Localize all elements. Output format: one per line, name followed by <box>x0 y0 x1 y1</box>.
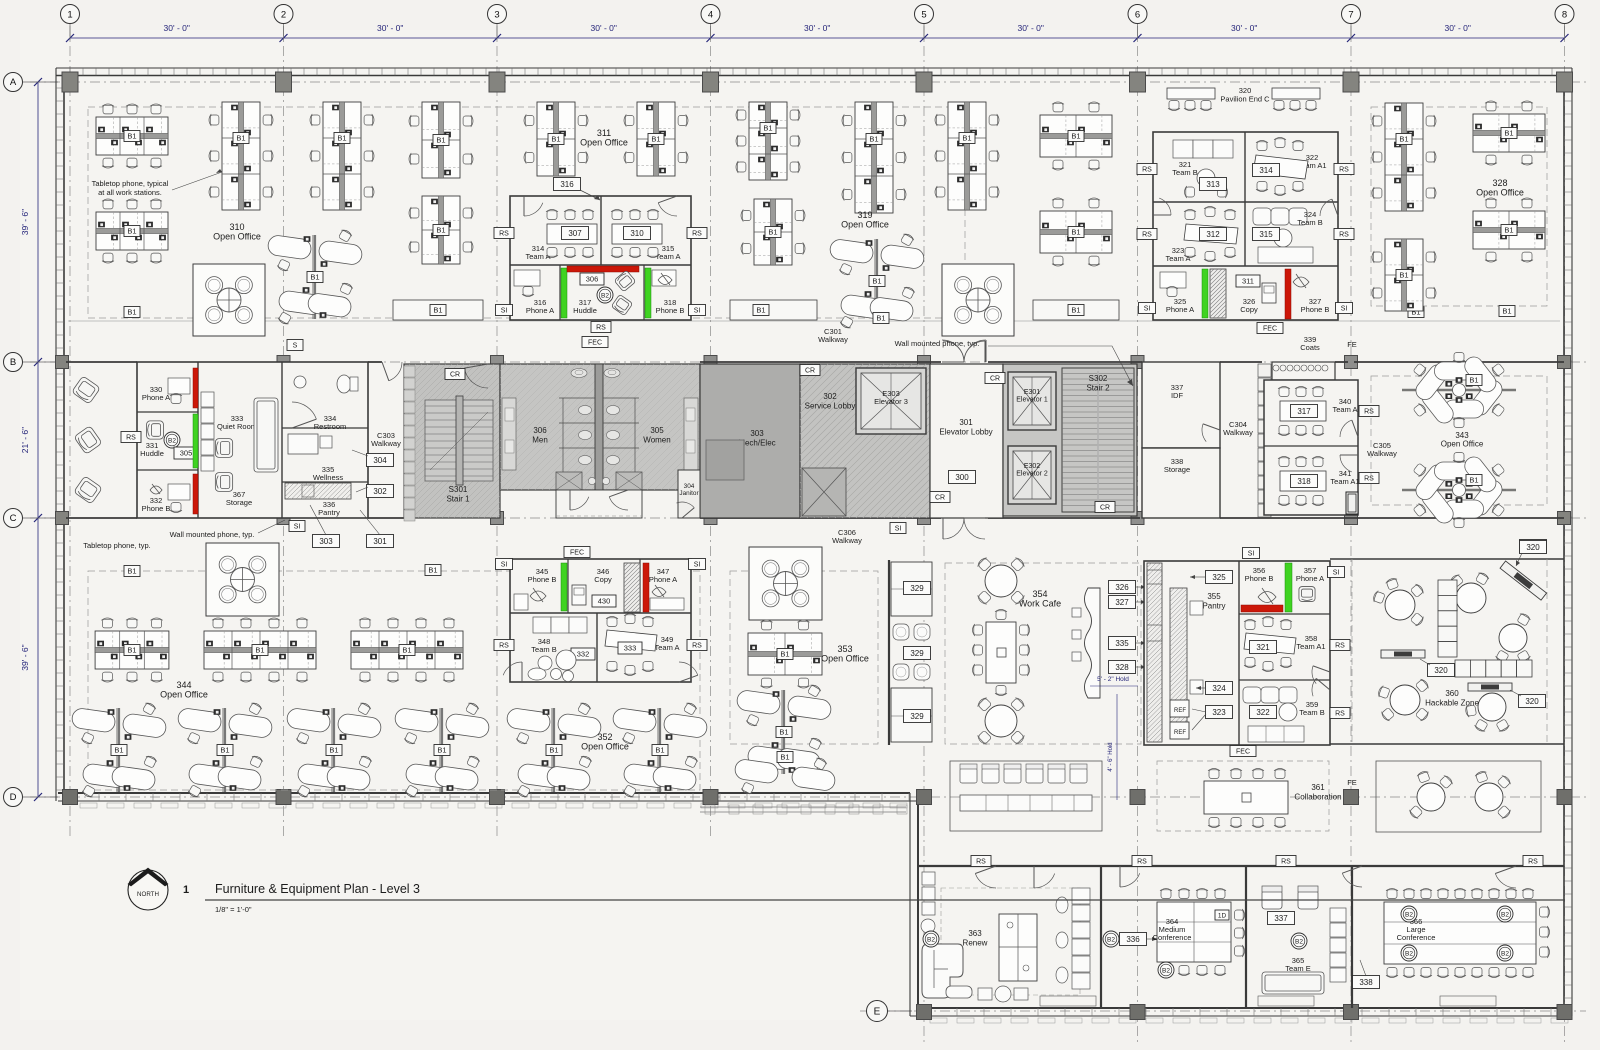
svg-text:B1: B1 <box>1071 132 1080 141</box>
svg-text:SI: SI <box>694 308 701 315</box>
svg-text:Women: Women <box>643 436 670 445</box>
svg-text:RS: RS <box>596 325 606 332</box>
svg-text:Walkway: Walkway <box>1367 449 1397 458</box>
svg-text:Team B: Team B <box>1299 708 1324 717</box>
svg-text:B1: B1 <box>1504 226 1513 235</box>
svg-text:333: 333 <box>624 644 637 653</box>
svg-text:430: 430 <box>598 597 611 606</box>
svg-text:B1: B1 <box>310 273 319 282</box>
svg-text:B1: B1 <box>763 124 772 133</box>
svg-text:Open Office: Open Office <box>1476 188 1524 198</box>
svg-text:Phone B: Phone B <box>1245 574 1274 583</box>
svg-text:B1: B1 <box>1071 228 1080 237</box>
svg-text:Stair 1: Stair 1 <box>446 495 470 504</box>
svg-text:316: 316 <box>560 180 574 189</box>
svg-text:Team B: Team B <box>1172 168 1197 177</box>
svg-text:301: 301 <box>959 418 973 427</box>
svg-text:315: 315 <box>1259 230 1273 239</box>
svg-text:SI: SI <box>1248 551 1255 558</box>
svg-text:B1: B1 <box>236 134 245 143</box>
svg-text:B2: B2 <box>1295 939 1303 946</box>
svg-text:RS: RS <box>1339 167 1349 174</box>
svg-text:FEC: FEC <box>588 340 602 347</box>
svg-text:5' - 2" Hold: 5' - 2" Hold <box>1097 676 1129 683</box>
svg-text:Stair 2: Stair 2 <box>1086 384 1110 393</box>
svg-text:30' - 0": 30' - 0" <box>804 23 830 33</box>
svg-text:D: D <box>10 792 17 803</box>
svg-text:B2: B2 <box>601 293 609 300</box>
svg-text:352: 352 <box>597 732 612 742</box>
svg-text:B1: B1 <box>127 646 136 655</box>
svg-text:337: 337 <box>1274 914 1288 923</box>
svg-text:B1: B1 <box>127 308 136 317</box>
svg-text:Open Office: Open Office <box>580 138 628 148</box>
svg-text:B2: B2 <box>1501 951 1509 958</box>
svg-text:Pantry: Pantry <box>318 508 340 517</box>
svg-text:B1: B1 <box>551 135 560 144</box>
svg-text:Phone A: Phone A <box>526 306 554 315</box>
svg-text:E301: E301 <box>1024 389 1040 396</box>
svg-text:Team A: Team A <box>654 643 679 652</box>
svg-text:B1: B1 <box>768 228 777 237</box>
svg-text:30' - 0": 30' - 0" <box>1445 23 1471 33</box>
svg-text:Phone A: Phone A <box>1166 305 1194 314</box>
svg-text:B1: B1 <box>337 134 346 143</box>
svg-text:30' - 0": 30' - 0" <box>377 23 403 33</box>
svg-text:B2: B2 <box>1107 937 1115 944</box>
svg-text:300: 300 <box>955 473 969 482</box>
svg-text:SI: SI <box>895 526 902 533</box>
svg-text:Huddle: Huddle <box>573 306 597 315</box>
svg-text:305: 305 <box>180 449 193 458</box>
svg-text:361: 361 <box>1311 783 1325 792</box>
svg-text:1: 1 <box>183 884 189 896</box>
svg-text:Men: Men <box>532 436 548 445</box>
svg-text:301: 301 <box>373 537 387 546</box>
svg-text:RS: RS <box>1281 859 1291 866</box>
svg-text:Wall mounted phone, typ.: Wall mounted phone, typ. <box>170 530 255 539</box>
svg-text:30' - 0": 30' - 0" <box>164 23 190 33</box>
svg-text:SI: SI <box>1341 306 1348 313</box>
svg-text:Elevator 2: Elevator 2 <box>1016 471 1048 478</box>
svg-text:at all work stations.: at all work stations. <box>98 188 162 197</box>
svg-text:8: 8 <box>1562 10 1567 21</box>
svg-text:314: 314 <box>1259 166 1273 175</box>
svg-text:B1: B1 <box>876 314 885 323</box>
svg-text:RS: RS <box>1364 476 1374 483</box>
svg-text:RS: RS <box>1137 859 1147 866</box>
svg-text:Walkway: Walkway <box>818 335 848 344</box>
svg-text:Conference: Conference <box>1153 933 1192 942</box>
svg-text:302: 302 <box>823 392 837 401</box>
svg-text:Wellness: Wellness <box>313 473 344 482</box>
svg-text:Open Office: Open Office <box>581 742 629 752</box>
svg-text:C: C <box>10 513 17 524</box>
svg-text:318: 318 <box>1297 477 1311 486</box>
svg-text:RS: RS <box>1528 859 1538 866</box>
svg-text:Wall mounted phone, typ.: Wall mounted phone, typ. <box>895 339 980 348</box>
svg-text:329: 329 <box>910 649 924 658</box>
svg-text:Team A1: Team A1 <box>1330 477 1359 486</box>
svg-text:B1: B1 <box>127 227 136 236</box>
svg-text:303: 303 <box>319 537 333 546</box>
svg-text:Storage: Storage <box>226 498 252 507</box>
svg-text:FEC: FEC <box>1263 326 1277 333</box>
svg-text:B: B <box>10 357 16 368</box>
svg-text:B1: B1 <box>779 728 788 737</box>
svg-text:320: 320 <box>1526 543 1540 552</box>
svg-text:B1: B1 <box>1504 129 1513 138</box>
svg-text:Open Office: Open Office <box>841 220 889 230</box>
svg-text:312: 312 <box>1206 230 1220 239</box>
svg-text:Team A: Team A <box>655 252 680 261</box>
svg-text:Hackable Zone: Hackable Zone <box>1425 699 1479 708</box>
svg-text:B1: B1 <box>220 746 229 755</box>
svg-text:Tabletop phone, typical: Tabletop phone, typical <box>92 179 169 188</box>
svg-text:Collaboration: Collaboration <box>1294 793 1341 802</box>
svg-text:B2: B2 <box>1501 912 1509 919</box>
svg-text:1D: 1D <box>1218 912 1227 919</box>
svg-text:Team A: Team A <box>1332 405 1357 414</box>
svg-text:6: 6 <box>1135 10 1140 21</box>
svg-text:4: 4 <box>708 10 713 21</box>
svg-text:338: 338 <box>1359 978 1373 987</box>
svg-text:E: E <box>874 1007 881 1018</box>
svg-text:Service Lobby: Service Lobby <box>805 402 856 411</box>
svg-text:S301: S301 <box>449 485 468 494</box>
svg-text:311: 311 <box>1242 277 1254 286</box>
svg-text:Coats: Coats <box>1300 343 1320 352</box>
svg-text:Huddle: Huddle <box>140 449 164 458</box>
svg-text:B1: B1 <box>962 134 971 143</box>
svg-text:B1: B1 <box>1399 135 1408 144</box>
svg-text:B2: B2 <box>168 438 176 445</box>
svg-text:328: 328 <box>1115 663 1129 672</box>
svg-text:Furniture & Equipment Plan - L: Furniture & Equipment Plan - Level 3 <box>215 882 420 896</box>
svg-text:3: 3 <box>494 10 499 21</box>
svg-text:SI: SI <box>694 562 701 569</box>
svg-text:Open Office: Open Office <box>1441 440 1484 449</box>
svg-text:B1: B1 <box>437 746 446 755</box>
svg-text:B1: B1 <box>127 132 136 141</box>
svg-text:21' - 6": 21' - 6" <box>20 427 30 453</box>
svg-text:IDF: IDF <box>1171 391 1184 400</box>
svg-text:B1: B1 <box>1469 476 1478 485</box>
svg-text:SI: SI <box>1333 570 1340 577</box>
svg-text:Elevator Lobby: Elevator Lobby <box>939 428 992 437</box>
svg-text:39' - 6": 39' - 6" <box>20 644 30 670</box>
svg-text:Pantry: Pantry <box>1202 602 1225 611</box>
svg-text:30' - 0": 30' - 0" <box>591 23 617 33</box>
svg-text:329: 329 <box>910 712 924 721</box>
svg-text:Janitor: Janitor <box>679 490 699 497</box>
svg-text:335: 335 <box>1115 639 1129 648</box>
svg-text:319: 319 <box>857 210 872 220</box>
svg-text:320: 320 <box>1434 666 1448 675</box>
svg-text:303: 303 <box>750 429 764 438</box>
svg-text:324: 324 <box>1212 684 1226 693</box>
svg-text:B1: B1 <box>655 746 664 755</box>
svg-text:B2: B2 <box>1405 951 1413 958</box>
svg-text:RS: RS <box>126 435 136 442</box>
svg-text:RS: RS <box>1335 643 1345 650</box>
svg-text:325: 325 <box>1212 573 1226 582</box>
svg-text:Team A1: Team A1 <box>1296 642 1325 651</box>
svg-text:B1: B1 <box>428 566 437 575</box>
svg-text:RS: RS <box>1339 232 1349 239</box>
svg-text:B1: B1 <box>329 746 338 755</box>
svg-text:Phone A: Phone A <box>1296 574 1324 583</box>
svg-text:Storage: Storage <box>1164 465 1190 474</box>
svg-text:B1: B1 <box>549 746 558 755</box>
svg-text:Work Cafe: Work Cafe <box>1019 599 1061 609</box>
svg-text:Walkway: Walkway <box>832 536 862 545</box>
svg-text:RS: RS <box>499 643 509 650</box>
svg-text:Phone B: Phone B <box>142 504 171 513</box>
svg-text:Phone A: Phone A <box>649 575 677 584</box>
svg-text:B1: B1 <box>255 646 264 655</box>
svg-text:B1: B1 <box>651 135 660 144</box>
svg-text:SI: SI <box>294 524 301 531</box>
svg-text:Open Office: Open Office <box>160 690 208 700</box>
svg-text:B1: B1 <box>780 650 789 659</box>
svg-text:FE: FE <box>1347 778 1357 787</box>
svg-text:B1: B1 <box>1502 307 1511 316</box>
svg-text:B2: B2 <box>1405 912 1413 919</box>
svg-text:A: A <box>10 77 17 88</box>
svg-text:Elevator 1: Elevator 1 <box>1016 397 1048 404</box>
svg-text:NORTH: NORTH <box>137 891 159 898</box>
svg-text:CR: CR <box>990 376 1000 383</box>
svg-text:Copy: Copy <box>594 575 612 584</box>
svg-text:CR: CR <box>935 495 945 502</box>
svg-text:REF: REF <box>1174 730 1186 736</box>
svg-text:B1: B1 <box>127 567 136 576</box>
svg-text:1/8" = 1'-0": 1/8" = 1'-0" <box>215 905 252 914</box>
svg-text:Phone A: Phone A <box>142 393 170 402</box>
svg-text:5: 5 <box>921 10 926 21</box>
svg-text:Tabletop phone, typ.: Tabletop phone, typ. <box>83 541 151 550</box>
svg-text:B1: B1 <box>114 746 123 755</box>
svg-text:S: S <box>293 343 298 350</box>
svg-text:336: 336 <box>1126 935 1140 944</box>
svg-text:B1: B1 <box>780 753 789 762</box>
svg-text:RS: RS <box>1142 167 1152 174</box>
svg-text:304: 304 <box>373 456 387 465</box>
svg-text:Copy: Copy <box>1240 305 1258 314</box>
svg-text:Team B: Team B <box>1297 218 1322 227</box>
svg-text:326: 326 <box>1115 583 1129 592</box>
svg-text:355: 355 <box>1207 592 1221 601</box>
svg-text:317: 317 <box>1297 407 1311 416</box>
svg-text:SI: SI <box>501 562 508 569</box>
svg-text:RS: RS <box>499 231 509 238</box>
svg-text:332: 332 <box>577 650 590 659</box>
svg-text:SI: SI <box>501 308 508 315</box>
svg-text:SI: SI <box>1144 306 1151 313</box>
svg-text:323: 323 <box>1212 708 1226 717</box>
svg-text:4' - 6" Hold: 4' - 6" Hold <box>1108 742 1114 771</box>
svg-text:Pavilion End C: Pavilion End C <box>1220 95 1270 104</box>
svg-text:354: 354 <box>1032 589 1047 599</box>
svg-text:FE: FE <box>1347 340 1357 349</box>
svg-text:305: 305 <box>650 426 664 435</box>
svg-text:313: 313 <box>1206 180 1220 189</box>
svg-text:2: 2 <box>281 10 286 21</box>
svg-text:1: 1 <box>67 10 72 21</box>
svg-text:39' - 6": 39' - 6" <box>20 209 30 235</box>
svg-text:302: 302 <box>373 487 387 496</box>
svg-text:RS: RS <box>976 859 986 866</box>
svg-text:320: 320 <box>1525 697 1539 706</box>
svg-text:304: 304 <box>684 483 695 490</box>
svg-text:B1: B1 <box>869 135 878 144</box>
svg-text:30' - 0": 30' - 0" <box>1018 23 1044 33</box>
svg-text:B1: B1 <box>1071 306 1080 315</box>
svg-text:B1: B1 <box>1399 271 1408 280</box>
svg-text:306: 306 <box>533 426 547 435</box>
svg-text:B1: B1 <box>402 646 411 655</box>
svg-text:B1: B1 <box>433 306 442 315</box>
svg-text:363: 363 <box>968 929 982 938</box>
svg-text:B1: B1 <box>872 277 881 286</box>
svg-text:RS: RS <box>1364 409 1374 416</box>
svg-text:CR: CR <box>805 368 815 375</box>
svg-text:FEC: FEC <box>570 550 584 557</box>
svg-text:B1: B1 <box>756 306 765 315</box>
svg-text:Elevator 3: Elevator 3 <box>874 397 908 406</box>
svg-text:Walkway: Walkway <box>1223 428 1253 437</box>
svg-text:344: 344 <box>176 680 191 690</box>
svg-text:353: 353 <box>837 644 852 654</box>
svg-text:307: 307 <box>568 229 582 238</box>
svg-text:Phone B: Phone B <box>528 575 557 584</box>
svg-text:REF: REF <box>1174 708 1186 714</box>
svg-text:322: 322 <box>1256 708 1270 717</box>
svg-text:Conference: Conference <box>1397 933 1436 942</box>
svg-text:RS: RS <box>1142 232 1152 239</box>
svg-text:327: 327 <box>1115 598 1129 607</box>
svg-text:B1: B1 <box>436 226 445 235</box>
svg-text:329: 329 <box>910 584 924 593</box>
svg-text:310: 310 <box>229 222 244 232</box>
svg-text:Open Office: Open Office <box>821 654 869 664</box>
svg-text:B1: B1 <box>1469 376 1478 385</box>
svg-text:CR: CR <box>1100 505 1110 512</box>
svg-text:360: 360 <box>1445 689 1459 698</box>
svg-text:310: 310 <box>630 229 644 238</box>
svg-text:30' - 0": 30' - 0" <box>1231 23 1257 33</box>
svg-text:Open Office: Open Office <box>213 232 261 242</box>
svg-text:RS: RS <box>692 643 702 650</box>
svg-text:311: 311 <box>597 128 611 138</box>
svg-text:Walkway: Walkway <box>371 439 401 448</box>
svg-text:RS: RS <box>692 231 702 238</box>
svg-text:B2: B2 <box>927 937 935 944</box>
svg-text:B1: B1 <box>436 136 445 145</box>
svg-text:306: 306 <box>586 275 599 284</box>
svg-text:S302: S302 <box>1089 374 1108 383</box>
svg-text:Phone B: Phone B <box>1301 305 1330 314</box>
svg-text:Quiet Room: Quiet Room <box>217 422 257 431</box>
svg-text:E302: E302 <box>1024 463 1040 470</box>
svg-text:Team B: Team B <box>531 645 556 654</box>
svg-text:B2: B2 <box>1162 968 1170 975</box>
svg-text:321: 321 <box>1256 643 1270 652</box>
svg-text:RS: RS <box>1335 711 1345 718</box>
svg-text:7: 7 <box>1348 10 1353 21</box>
svg-text:Phone B: Phone B <box>656 306 685 315</box>
svg-text:CR: CR <box>450 372 460 379</box>
svg-text:328: 328 <box>1492 178 1507 188</box>
svg-text:Restroom: Restroom <box>314 422 347 431</box>
svg-text:FEC: FEC <box>1236 749 1250 756</box>
svg-text:Renew: Renew <box>963 939 988 948</box>
